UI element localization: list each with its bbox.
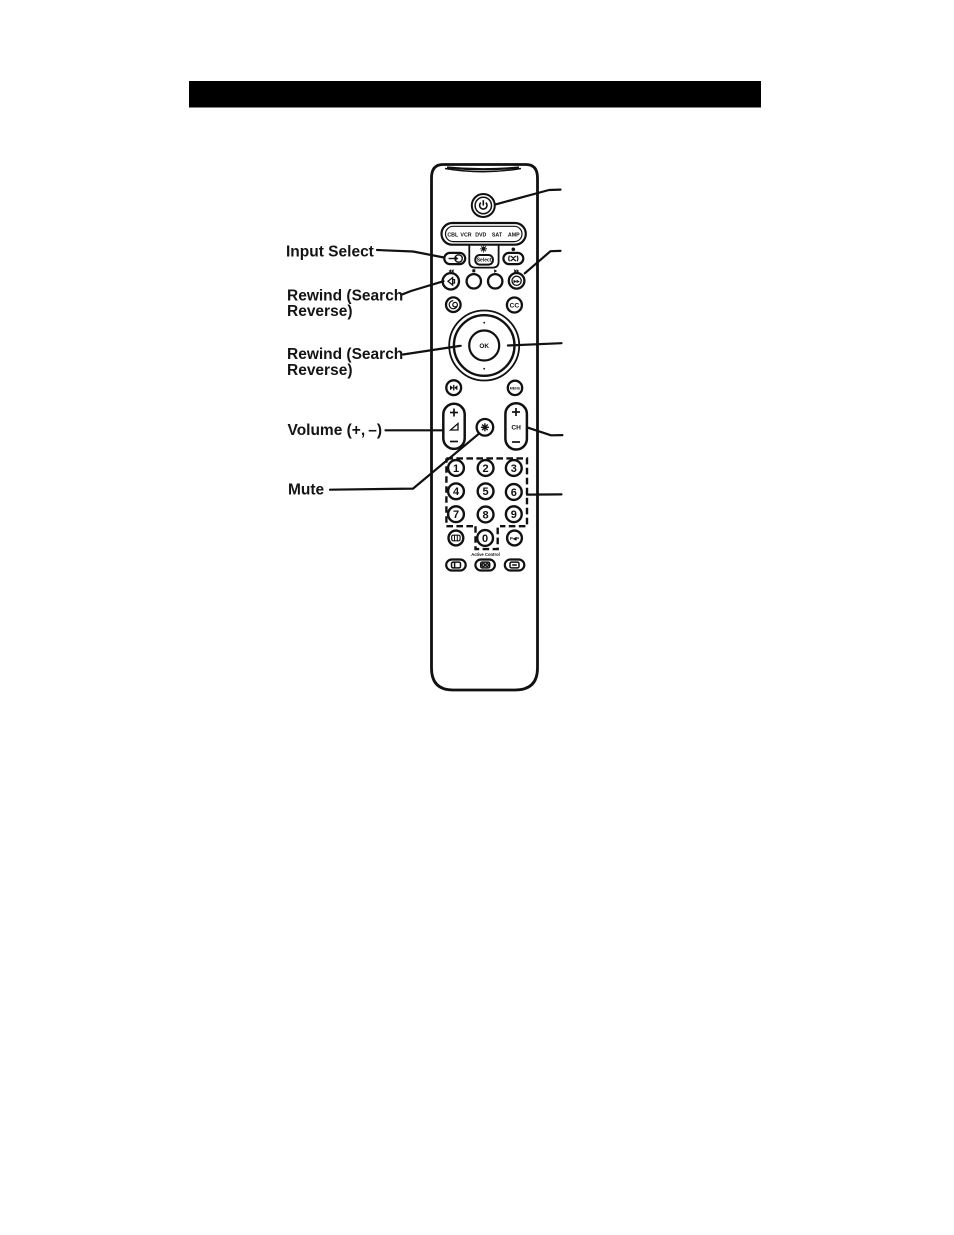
svg-text:AMP: AMP (508, 232, 520, 238)
svg-text:VCR: VCR (460, 232, 471, 238)
svg-text:0: 0 (482, 533, 488, 545)
svg-text:Reverse): Reverse) (287, 303, 353, 320)
svg-text:Active Control: Active Control (471, 552, 500, 557)
svg-text:8: 8 (483, 509, 489, 521)
svg-text:MENU: MENU (510, 386, 521, 390)
svg-text:6: 6 (511, 487, 517, 499)
svg-text:Select: Select (477, 258, 492, 264)
svg-text:Volume (+, –): Volume (+, –) (288, 422, 383, 439)
svg-text:Reverse): Reverse) (287, 362, 353, 379)
svg-text:CC: CC (509, 302, 519, 309)
svg-text:4: 4 (453, 486, 460, 498)
svg-text:3: 3 (511, 463, 517, 475)
svg-text:OK: OK (479, 343, 489, 350)
svg-text:CH: CH (511, 425, 521, 432)
svg-text:5: 5 (483, 486, 489, 498)
svg-text:▶▶: ▶▶ (513, 279, 521, 283)
svg-text:P◀P: P◀P (510, 536, 519, 541)
svg-text:Rewind (Search: Rewind (Search (287, 346, 403, 363)
svg-text:CBL: CBL (447, 232, 459, 238)
svg-text:SAT: SAT (492, 232, 503, 238)
svg-text:9: 9 (511, 509, 517, 521)
svg-text:Mute: Mute (288, 482, 325, 499)
svg-text:2: 2 (483, 463, 489, 475)
svg-text:DVD: DVD (475, 232, 486, 238)
svg-text:Rewind (Search: Rewind (Search (287, 287, 403, 304)
svg-text:1: 1 (453, 463, 459, 475)
svg-text:Input Select: Input Select (286, 244, 374, 261)
svg-text:7: 7 (453, 509, 459, 521)
